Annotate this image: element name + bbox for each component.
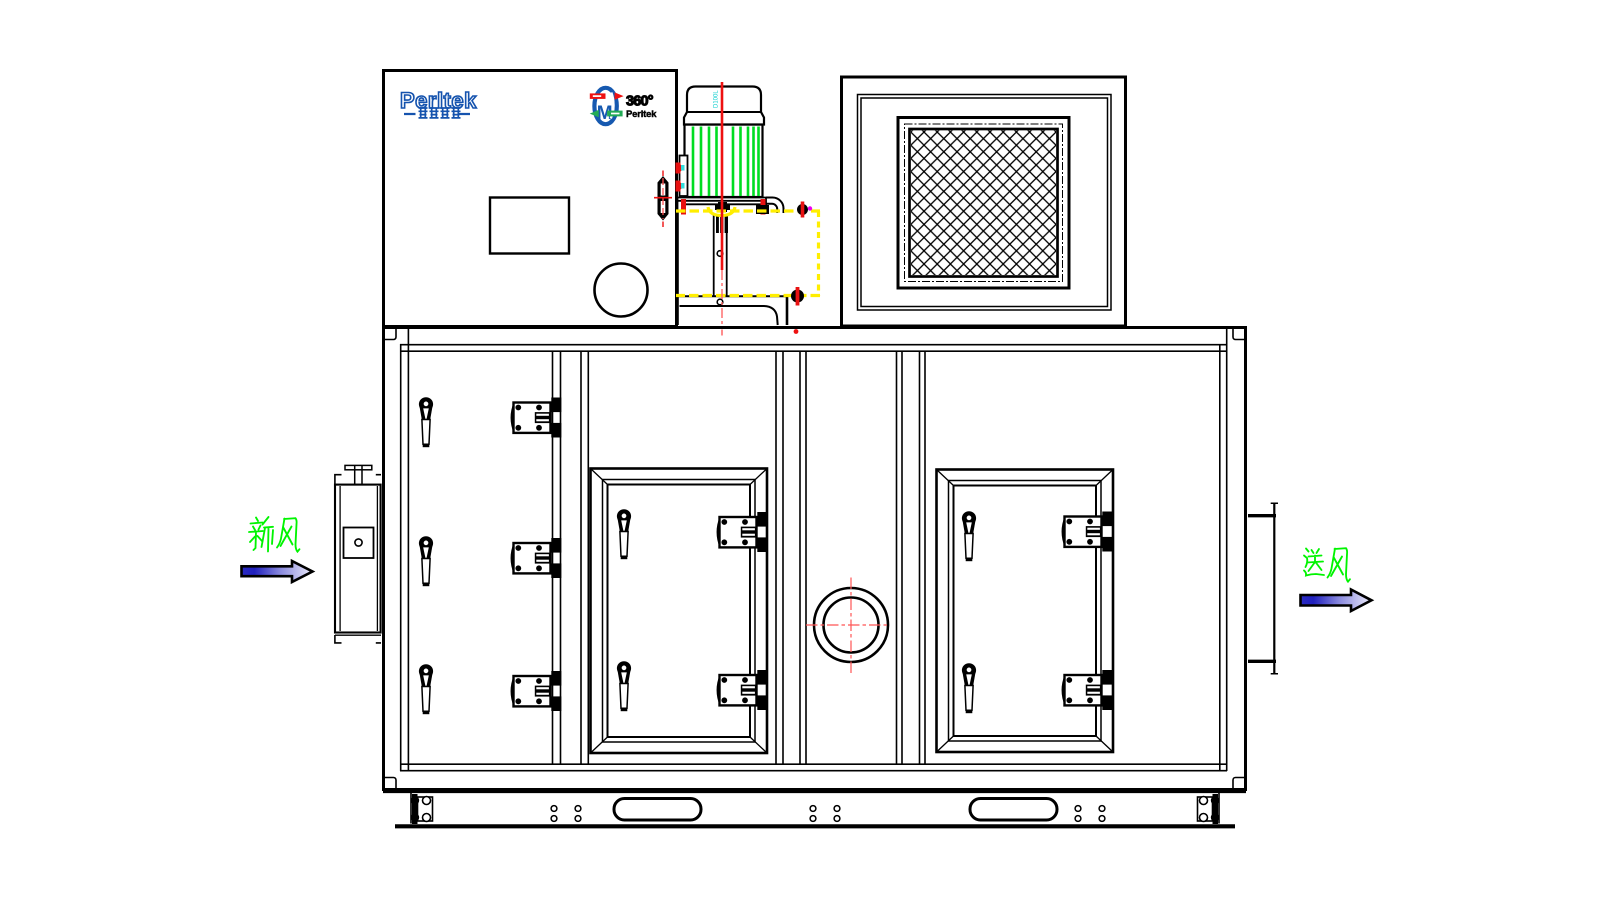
- svg-text:D100L: D100L: [714, 90, 720, 108]
- svg-text:Perltek: Perltek: [626, 109, 657, 120]
- svg-text:360°: 360°: [626, 94, 654, 110]
- svg-text:Perltek: Perltek: [400, 88, 477, 113]
